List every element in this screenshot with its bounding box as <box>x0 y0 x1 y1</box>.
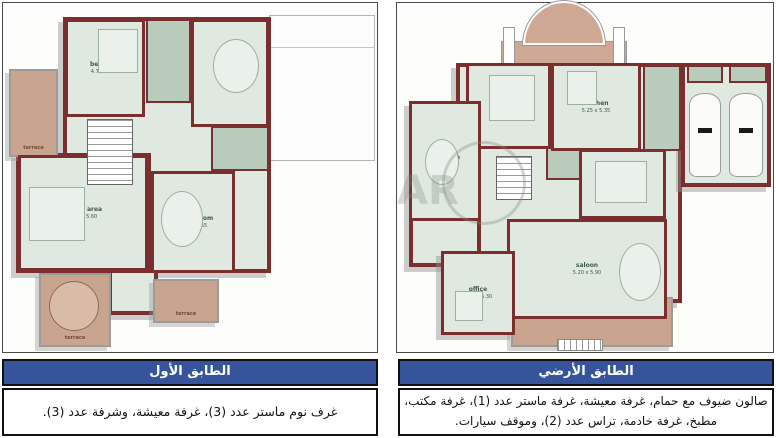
entrance-arch <box>501 9 627 65</box>
garage-strip-2 <box>729 65 767 83</box>
bottom-hall-block <box>108 269 158 315</box>
caption-body-first-floor: غرف نوم ماستر عدد (3)، غرفة معيشة، وشرفة… <box>2 388 378 436</box>
terrace-round-table <box>49 281 99 331</box>
arch-pillar-left <box>503 27 515 65</box>
office-desk <box>455 291 483 321</box>
bathroom-right <box>211 126 269 171</box>
floorplan-ground-floor: living4.55 x 5.30kitchen5.25 x 5.35bedro… <box>396 2 774 353</box>
caption-body-ground-floor: صالون ضيوف مع حمام، غرفة معيشة، غرفة ماس… <box>398 388 774 436</box>
saloon-seat <box>619 243 661 301</box>
living-sofa <box>489 75 535 121</box>
arch-dome <box>523 1 605 45</box>
caption-body-text: غرف نوم ماستر عدد (3)، غرفة معيشة، وشرفة… <box>43 404 338 419</box>
caption-title-ground-floor: الطابق الأرضي <box>398 359 774 386</box>
garage-strip-1 <box>687 65 723 83</box>
caption-title-text: الطابق الأول <box>149 364 231 379</box>
caption-title-first-floor: الطابق الأول <box>2 359 378 386</box>
watermark-text: AR <box>397 171 457 221</box>
floorplan-first-floor: terraceterraceterracebedroom4.70 x 5.40b… <box>2 2 378 353</box>
bed-1 <box>98 29 138 73</box>
terrace-left: terrace <box>9 69 58 157</box>
front-steps <box>557 339 603 351</box>
bathroom-top <box>146 19 191 103</box>
scanned-floorplan-page: terraceterraceterracebedroom4.70 x 5.40b… <box>0 0 776 438</box>
room-label: saloon5.20 x 5.90 <box>573 262 601 276</box>
car-2 <box>729 93 763 177</box>
kitchen-counter <box>567 71 597 105</box>
maid-room <box>643 65 681 151</box>
terrace-label: terrace <box>23 145 43 151</box>
family-rug <box>29 187 85 241</box>
dining-table <box>595 161 647 203</box>
master-bed <box>161 191 203 247</box>
terrace-label: terrace <box>65 335 85 341</box>
roof-line <box>269 47 375 48</box>
bed-2 <box>213 39 259 93</box>
arch-pillar-right <box>613 27 625 65</box>
staircase <box>87 119 133 185</box>
car-1 <box>689 93 721 177</box>
caption-title-text: الطابق الأرضي <box>538 364 633 379</box>
terrace-bottom-center: terrace <box>153 279 219 323</box>
caption-body-text: صالون ضيوف مع حمام، غرفة معيشة، غرفة ماس… <box>404 394 768 428</box>
terrace-label: terrace <box>176 311 196 317</box>
garage-roof-outline <box>269 15 375 161</box>
